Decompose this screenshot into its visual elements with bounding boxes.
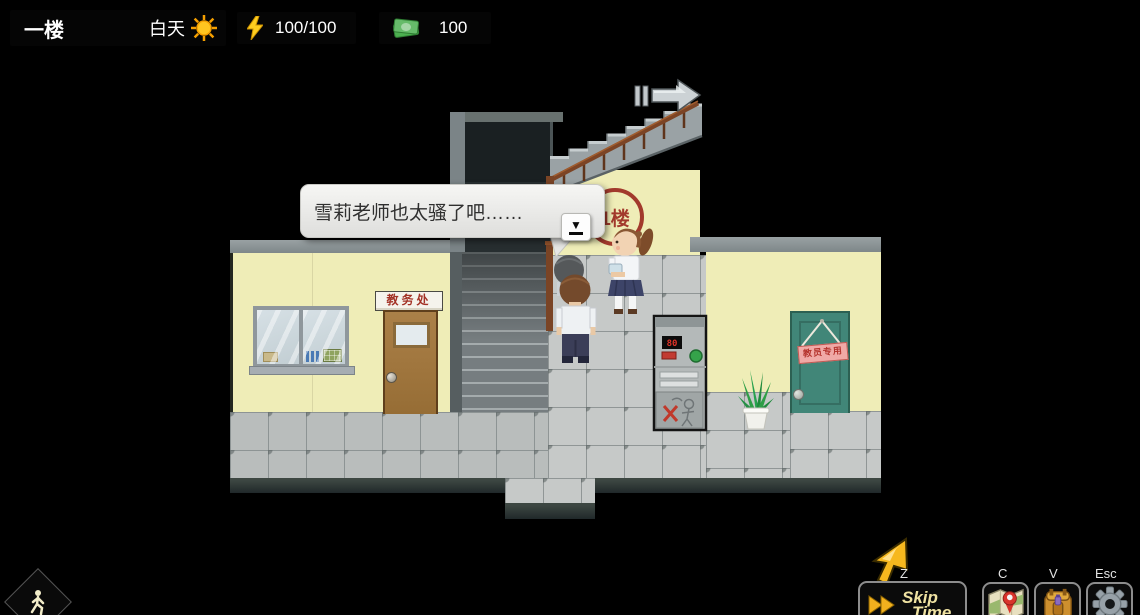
backpack-icon bbox=[1039, 587, 1077, 615]
energy-panel: 100/100 bbox=[237, 12, 356, 44]
dialogue-text: 雪莉老师也太骚了吧…… bbox=[314, 198, 523, 225]
lightning-icon bbox=[247, 16, 263, 40]
plant-leaves bbox=[738, 370, 774, 412]
map-icon bbox=[987, 587, 1025, 615]
walkway-left bbox=[230, 412, 548, 478]
window-sill bbox=[249, 366, 355, 375]
vending-machine[interactable]: 80 bbox=[652, 314, 708, 432]
office-window bbox=[253, 306, 349, 368]
window-pane-left bbox=[257, 310, 299, 364]
location-panel: 一楼 白天 bbox=[10, 10, 226, 46]
office-sign-text: 教务处 bbox=[386, 293, 431, 307]
inventory-button[interactable] bbox=[1034, 582, 1081, 615]
floor-right bbox=[790, 411, 881, 478]
wall-cap-left bbox=[230, 240, 460, 253]
gear-icon bbox=[1092, 586, 1128, 615]
time-label: 白天 bbox=[149, 15, 185, 41]
advance-triangle-icon: ▼ bbox=[570, 220, 582, 231]
wall-cap-right bbox=[690, 237, 881, 252]
skip-time-button[interactable]: Skip Time bbox=[858, 581, 967, 615]
staff-door-sign-text: 教员专用 bbox=[803, 345, 844, 358]
walk-mode-sign[interactable] bbox=[14, 578, 66, 615]
sun-icon bbox=[190, 14, 218, 42]
office-door-knob bbox=[386, 372, 397, 383]
window-item-bottle bbox=[316, 351, 319, 362]
machine-display: 80 bbox=[667, 339, 678, 349]
hotkey-v: V bbox=[1049, 566, 1058, 581]
window-item-box bbox=[263, 352, 278, 362]
skip-label-line2: Time bbox=[912, 605, 951, 615]
walking-person-icon bbox=[25, 589, 51, 615]
dialogue-advance-indicator[interactable]: ▼ bbox=[561, 213, 591, 241]
settings-button[interactable] bbox=[1086, 582, 1133, 615]
hotkey-c: C bbox=[998, 566, 1007, 581]
window-item-crate bbox=[323, 349, 342, 362]
window-item-bottle bbox=[306, 351, 309, 362]
plant-pot bbox=[745, 413, 767, 429]
potted-plant bbox=[736, 358, 776, 432]
window-item-bottle bbox=[311, 351, 314, 362]
energy-value: 100/100 bbox=[275, 18, 336, 38]
map-button[interactable] bbox=[982, 582, 1029, 615]
game-screen: 教务处 教员专用 bbox=[0, 0, 1140, 615]
entrance-landing bbox=[505, 478, 595, 503]
money-value: 100 bbox=[439, 18, 467, 38]
advance-bar-icon bbox=[569, 232, 583, 235]
npc-girl[interactable] bbox=[608, 227, 656, 314]
location-label: 一楼 bbox=[24, 14, 64, 43]
entrance-landing-base bbox=[505, 503, 595, 519]
staff-door-knob bbox=[793, 389, 804, 400]
money-icon bbox=[391, 17, 421, 39]
hotkey-esc: Esc bbox=[1095, 566, 1117, 581]
dialogue-bubble[interactable]: 雪莉老师也太骚了吧…… bbox=[300, 184, 605, 238]
window-pane-right bbox=[303, 310, 345, 364]
hotkey-z: Z bbox=[900, 566, 908, 581]
money-panel: 100 bbox=[379, 12, 491, 44]
office-door[interactable] bbox=[383, 310, 438, 414]
npc-boy[interactable] bbox=[556, 275, 596, 364]
fast-forward-icon bbox=[866, 593, 898, 615]
office-door-window bbox=[393, 322, 430, 348]
office-sign: 教务处 bbox=[375, 291, 443, 311]
